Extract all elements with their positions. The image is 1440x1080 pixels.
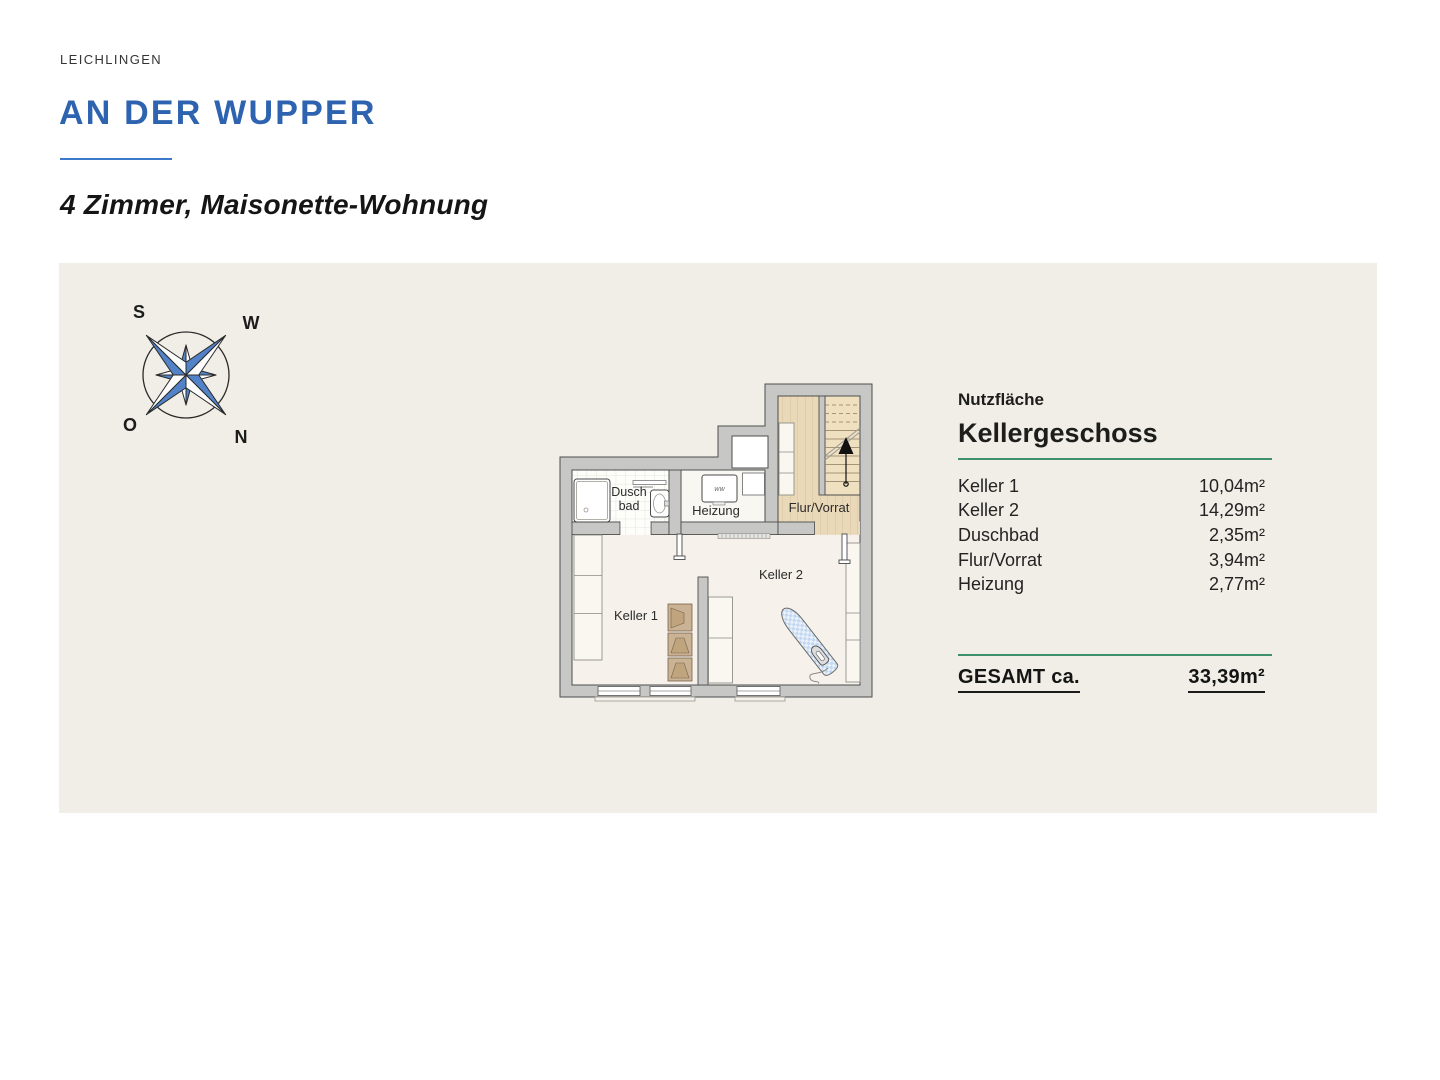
shower-tray (574, 479, 610, 522)
compass-label-south: S (133, 302, 145, 322)
label-heizung: Heizung (692, 503, 740, 518)
total-label: GESAMT ca. (958, 666, 1080, 693)
table-row: Flur/Vorrat 3,94m² (958, 548, 1265, 573)
compass-label-west: W (243, 313, 260, 333)
room-area: 2,35m² (1209, 525, 1265, 546)
label-keller1: Keller 1 (614, 608, 658, 623)
page-title: AN DER WUPPER (59, 94, 377, 133)
boiler-label: WW (714, 487, 725, 493)
page-subtitle: 4 Zimmer, Maisonette-Wohnung (60, 189, 488, 221)
heizung-unit (743, 473, 765, 495)
room-name: Keller 1 (958, 476, 1019, 497)
room-area: 2,77m² (1209, 574, 1265, 595)
table-rule-top (958, 458, 1272, 460)
compass-label-north: N (235, 427, 248, 447)
total-value: 33,39m² (1188, 666, 1265, 693)
room-area: 14,29m² (1199, 500, 1265, 521)
boiler-ww: WW (702, 475, 737, 505)
room-name: Keller 2 (958, 500, 1019, 521)
total-row: GESAMT ca. 33,39m² (958, 666, 1265, 693)
room-area: 3,94m² (1209, 550, 1265, 571)
table-rule-bottom (958, 654, 1272, 656)
compass-label-east: O (123, 415, 137, 435)
floorplan-drawing: WW (558, 380, 888, 705)
keller2-shelf (709, 597, 733, 683)
room-area: 10,04m² (1199, 476, 1265, 497)
sink (651, 490, 670, 517)
floorplan-panel: S W O N (59, 263, 1377, 813)
table-row: Duschbad 2,35m² (958, 523, 1265, 548)
label-flur-vorrat: Flur/Vorrat (789, 500, 850, 515)
area-rows: Keller 1 10,04m² Keller 2 14,29m² Duschb… (958, 474, 1265, 597)
flur-cabinet (779, 423, 794, 495)
label-keller2: Keller 2 (759, 567, 803, 582)
room-name: Flur/Vorrat (958, 550, 1042, 571)
room-name: Heizung (958, 574, 1024, 595)
radiator (718, 534, 770, 539)
floor-title: Kellergeschoss (958, 418, 1158, 449)
label-duschbad-line2: bad (619, 499, 640, 513)
area-table: Nutzfläche Kellergeschoss Keller 1 10,04… (958, 390, 1272, 710)
title-underline (60, 158, 172, 160)
basement-windows (595, 687, 785, 702)
brochure-page: LEICHLINGEN AN DER WUPPER 4 Zimmer, Mais… (0, 0, 1440, 1080)
light-shaft (732, 436, 768, 468)
storage-boxes (668, 604, 692, 681)
compass-rose-icon: S W O N (105, 293, 265, 453)
room-name: Duschbad (958, 525, 1039, 546)
keller1-shelves (574, 535, 602, 660)
table-row: Keller 2 14,29m² (958, 499, 1265, 524)
table-row: Heizung 2,77m² (958, 572, 1265, 597)
label-duschbad-line1: Dusch (611, 485, 646, 499)
table-row: Keller 1 10,04m² (958, 474, 1265, 499)
section-label: Nutzfläche (958, 390, 1044, 410)
location-label: LEICHLINGEN (60, 52, 162, 67)
